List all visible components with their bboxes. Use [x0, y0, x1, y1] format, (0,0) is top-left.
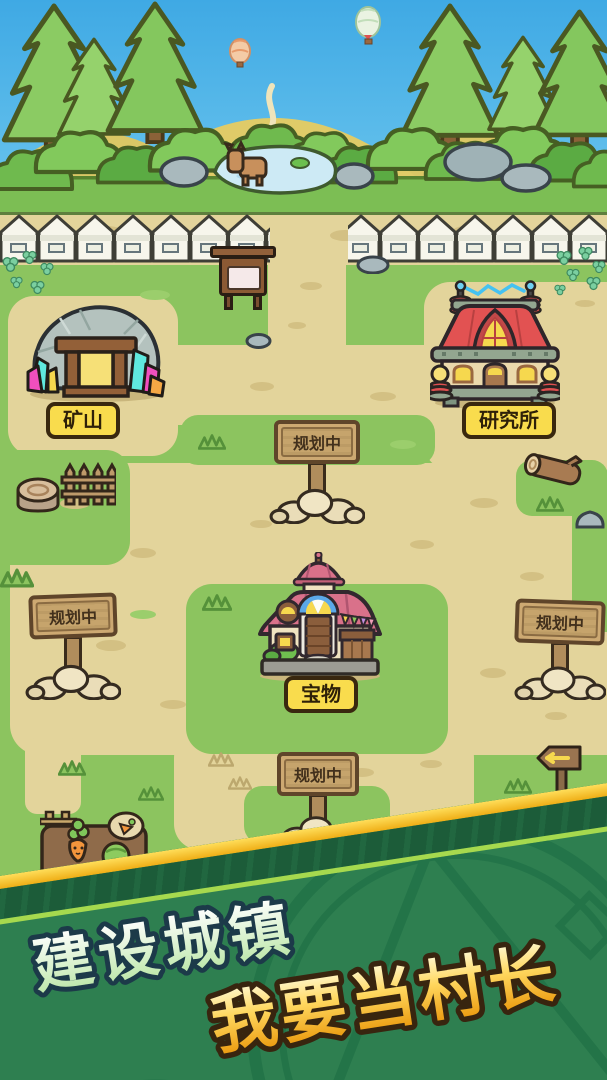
- clover-patch: [0, 248, 56, 298]
- grass-tuft: [138, 786, 164, 801]
- path-connector: [150, 345, 450, 425]
- notice-board-panel: [227, 266, 261, 290]
- sign-board: 规划中: [28, 592, 117, 639]
- lamp-icon: [538, 366, 560, 400]
- stone-base: [262, 660, 378, 674]
- sign-text: 规划中: [281, 427, 353, 457]
- sign-board: 规划中: [274, 420, 360, 464]
- door-icon: [305, 616, 331, 663]
- building-mine[interactable]: [26, 300, 166, 402]
- grass-tuft-dry: [228, 776, 252, 790]
- research-label[interactable]: 研究所: [462, 402, 556, 439]
- window-icon: [454, 366, 472, 382]
- planning-sign[interactable]: 规划中: [262, 420, 372, 524]
- rock-pile-icon: [269, 484, 365, 524]
- log-icon: [520, 446, 590, 494]
- round-window-icon: [277, 601, 299, 623]
- rock: [574, 508, 606, 530]
- lily-pad-icon: [291, 158, 309, 168]
- treasure-shop-icon: [254, 552, 386, 682]
- picket-fence: [0, 213, 607, 265]
- rock: [356, 254, 390, 274]
- small-window-icon: [276, 634, 294, 650]
- research-label-text: 研究所: [479, 408, 539, 432]
- research-lab-icon: [430, 278, 560, 410]
- treasure-label-text: 宝物: [301, 682, 341, 706]
- wooden-mini-fence-icon: [60, 460, 116, 508]
- path-garden-inlet: [25, 738, 81, 814]
- rock: [245, 332, 272, 349]
- grass-tuft: [0, 568, 34, 588]
- planning-sign[interactable]: 规划中: [18, 594, 128, 700]
- mine-label-text: 矿山: [63, 408, 103, 432]
- door-icon: [484, 364, 506, 387]
- grass-tuft: [504, 778, 532, 794]
- sign-text: 规划中: [521, 606, 598, 639]
- tree-stump-icon: [12, 468, 64, 514]
- treasure-label[interactable]: 宝物: [284, 676, 358, 713]
- grass-tuft: [58, 760, 86, 776]
- notice-board-frame: [219, 256, 267, 296]
- rock-pile-icon: [25, 660, 121, 700]
- grass-tuft: [536, 496, 564, 512]
- lamp-icon: [430, 366, 452, 400]
- game-screen: 矿山: [0, 0, 607, 1080]
- building-treasure[interactable]: [254, 552, 386, 682]
- rock-pile-icon: [514, 662, 606, 700]
- grass-tuft: [202, 594, 232, 611]
- path-gate: [268, 253, 346, 353]
- forest-scenery: [0, 0, 607, 215]
- mine-label[interactable]: 矿山: [46, 402, 120, 439]
- building-research[interactable]: [430, 278, 560, 410]
- planning-sign[interactable]: 规划中: [505, 600, 607, 700]
- sign-board: 规划中: [514, 598, 605, 645]
- grass-tuft: [198, 434, 226, 450]
- window-icon: [518, 366, 536, 382]
- mine-icon: [26, 300, 166, 402]
- electric-arc-icon: [466, 285, 524, 294]
- grass-tuft-dry: [208, 752, 234, 767]
- sign-text: 规划中: [35, 600, 110, 633]
- vendor-stall-icon: [340, 630, 374, 660]
- sign-board: 规划中: [277, 752, 359, 796]
- garden-sign-icon: [109, 813, 143, 839]
- sign-text: 规划中: [284, 759, 352, 789]
- notice-board[interactable]: [210, 246, 276, 316]
